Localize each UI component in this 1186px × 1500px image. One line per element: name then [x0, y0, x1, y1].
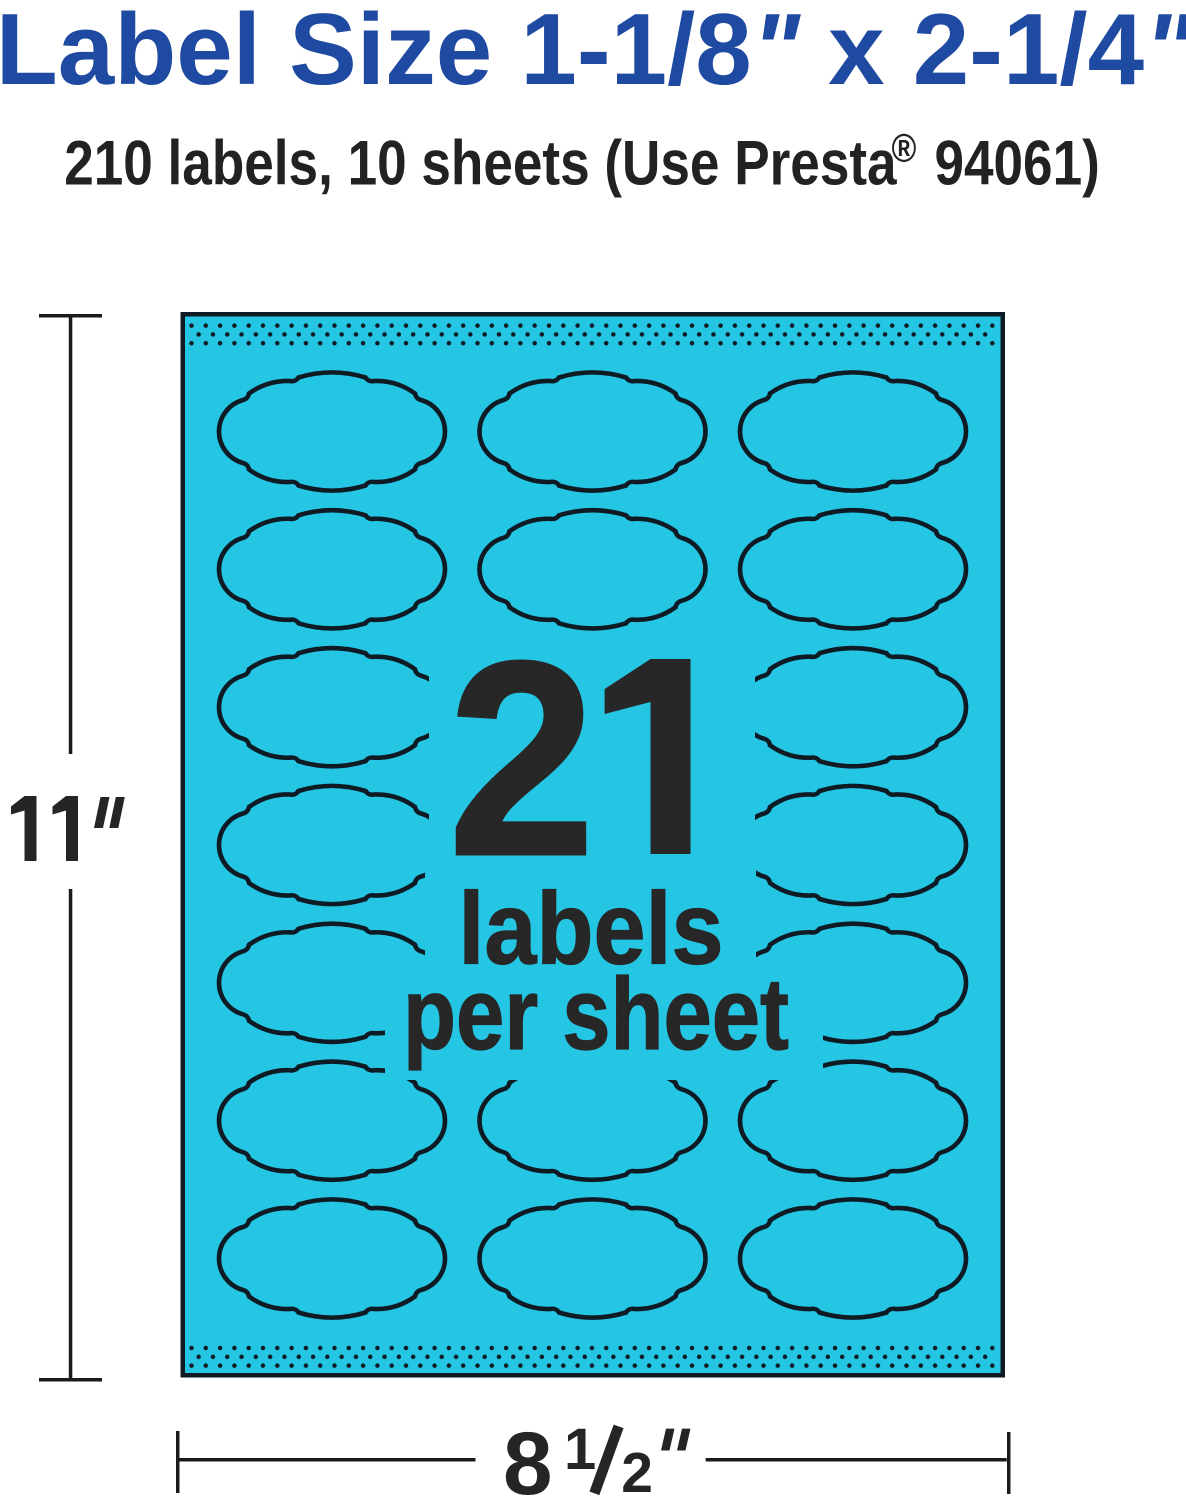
svg-text:210 labels, 10 sheets (Use Pre: 210 labels, 10 sheets (Use Presta® 94061…	[64, 126, 1100, 199]
svg-text:8: 8	[503, 1413, 553, 1500]
svg-text:per sheet: per sheet	[403, 957, 789, 1071]
svg-text:2: 2	[621, 1441, 653, 1500]
svg-text:2: 2	[448, 605, 595, 913]
svg-text:Label Size 1-1/8" x 2-1/4": Label Size 1-1/8" x 2-1/4"	[0, 0, 1186, 106]
svg-text:1: 1	[564, 1417, 596, 1482]
